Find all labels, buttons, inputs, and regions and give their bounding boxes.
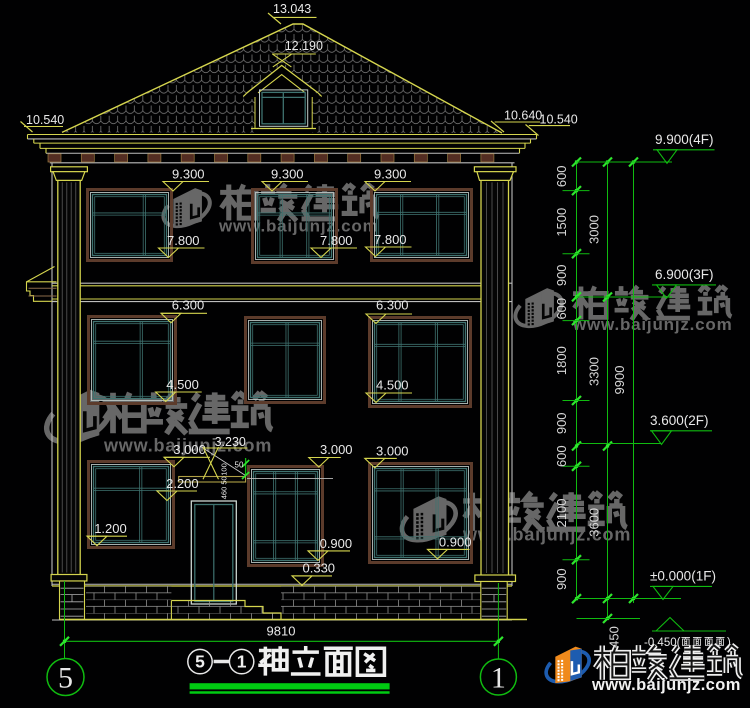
svg-text:0.900: 0.900 xyxy=(320,536,353,551)
svg-text:4.500: 4.500 xyxy=(166,377,199,392)
svg-text:3000: 3000 xyxy=(587,215,602,244)
svg-text:3.230: 3.230 xyxy=(215,435,246,449)
svg-text:10.540: 10.540 xyxy=(26,113,64,127)
svg-text:4.500: 4.500 xyxy=(376,378,409,393)
svg-text:9.300: 9.300 xyxy=(172,167,205,182)
svg-text:13.043: 13.043 xyxy=(273,2,311,16)
svg-text:9900: 9900 xyxy=(612,366,627,395)
svg-text:0.900: 0.900 xyxy=(439,534,472,549)
svg-text:1.200: 1.200 xyxy=(94,521,127,536)
svg-text:-0.450(: -0.450( xyxy=(644,637,681,649)
svg-text:50: 50 xyxy=(235,461,244,470)
svg-text:1800: 1800 xyxy=(554,346,569,375)
svg-text:50: 50 xyxy=(220,476,229,484)
svg-text:5: 5 xyxy=(58,662,73,695)
svg-text:100: 100 xyxy=(220,463,229,476)
svg-text:6.300: 6.300 xyxy=(172,298,205,313)
svg-text:3.600(2F): 3.600(2F) xyxy=(650,413,709,428)
svg-text:460: 460 xyxy=(220,487,229,500)
svg-text:12.190: 12.190 xyxy=(285,39,323,53)
svg-text:1500: 1500 xyxy=(554,208,569,237)
svg-text:0.330: 0.330 xyxy=(303,560,336,575)
svg-text:): ) xyxy=(727,637,731,649)
svg-text:2.200: 2.200 xyxy=(166,476,199,491)
svg-text:www.baijunjz.com: www.baijunjz.com xyxy=(591,676,741,694)
svg-text:www.baijunjz.com: www.baijunjz.com xyxy=(572,315,733,334)
svg-text:9.300: 9.300 xyxy=(374,167,407,182)
svg-text:3.000: 3.000 xyxy=(320,442,353,457)
svg-text:1: 1 xyxy=(237,652,247,672)
svg-text:900: 900 xyxy=(554,412,569,434)
svg-text:3.000: 3.000 xyxy=(173,442,206,457)
svg-text:6.900(3F): 6.900(3F) xyxy=(655,267,714,282)
svg-text:±0.000(1F): ±0.000(1F) xyxy=(650,569,716,584)
svg-text:2100: 2100 xyxy=(554,499,569,528)
svg-text:7.800: 7.800 xyxy=(374,232,407,247)
svg-text:10.540: 10.540 xyxy=(540,113,578,127)
svg-text:3600: 3600 xyxy=(587,508,602,537)
svg-text:1: 1 xyxy=(491,662,506,695)
svg-text:9810: 9810 xyxy=(267,623,296,638)
svg-text:www.baijunjz.com: www.baijunjz.com xyxy=(218,217,379,236)
svg-text:3300: 3300 xyxy=(587,357,602,386)
svg-text:900: 900 xyxy=(554,568,569,590)
svg-text:10.640: 10.640 xyxy=(504,109,542,123)
svg-text:5: 5 xyxy=(195,652,205,672)
svg-text:900: 900 xyxy=(554,264,569,286)
svg-text:7.800: 7.800 xyxy=(320,233,353,248)
svg-text:9.300: 9.300 xyxy=(271,167,304,182)
svg-text:9.900(4F): 9.900(4F) xyxy=(655,132,714,147)
svg-text:600: 600 xyxy=(554,298,569,320)
svg-text:7.800: 7.800 xyxy=(167,233,200,248)
svg-text:6.300: 6.300 xyxy=(376,298,409,313)
svg-text:3.000: 3.000 xyxy=(376,443,409,458)
svg-text:450: 450 xyxy=(607,626,622,648)
svg-text:600: 600 xyxy=(554,165,569,187)
svg-text:600: 600 xyxy=(554,445,569,467)
